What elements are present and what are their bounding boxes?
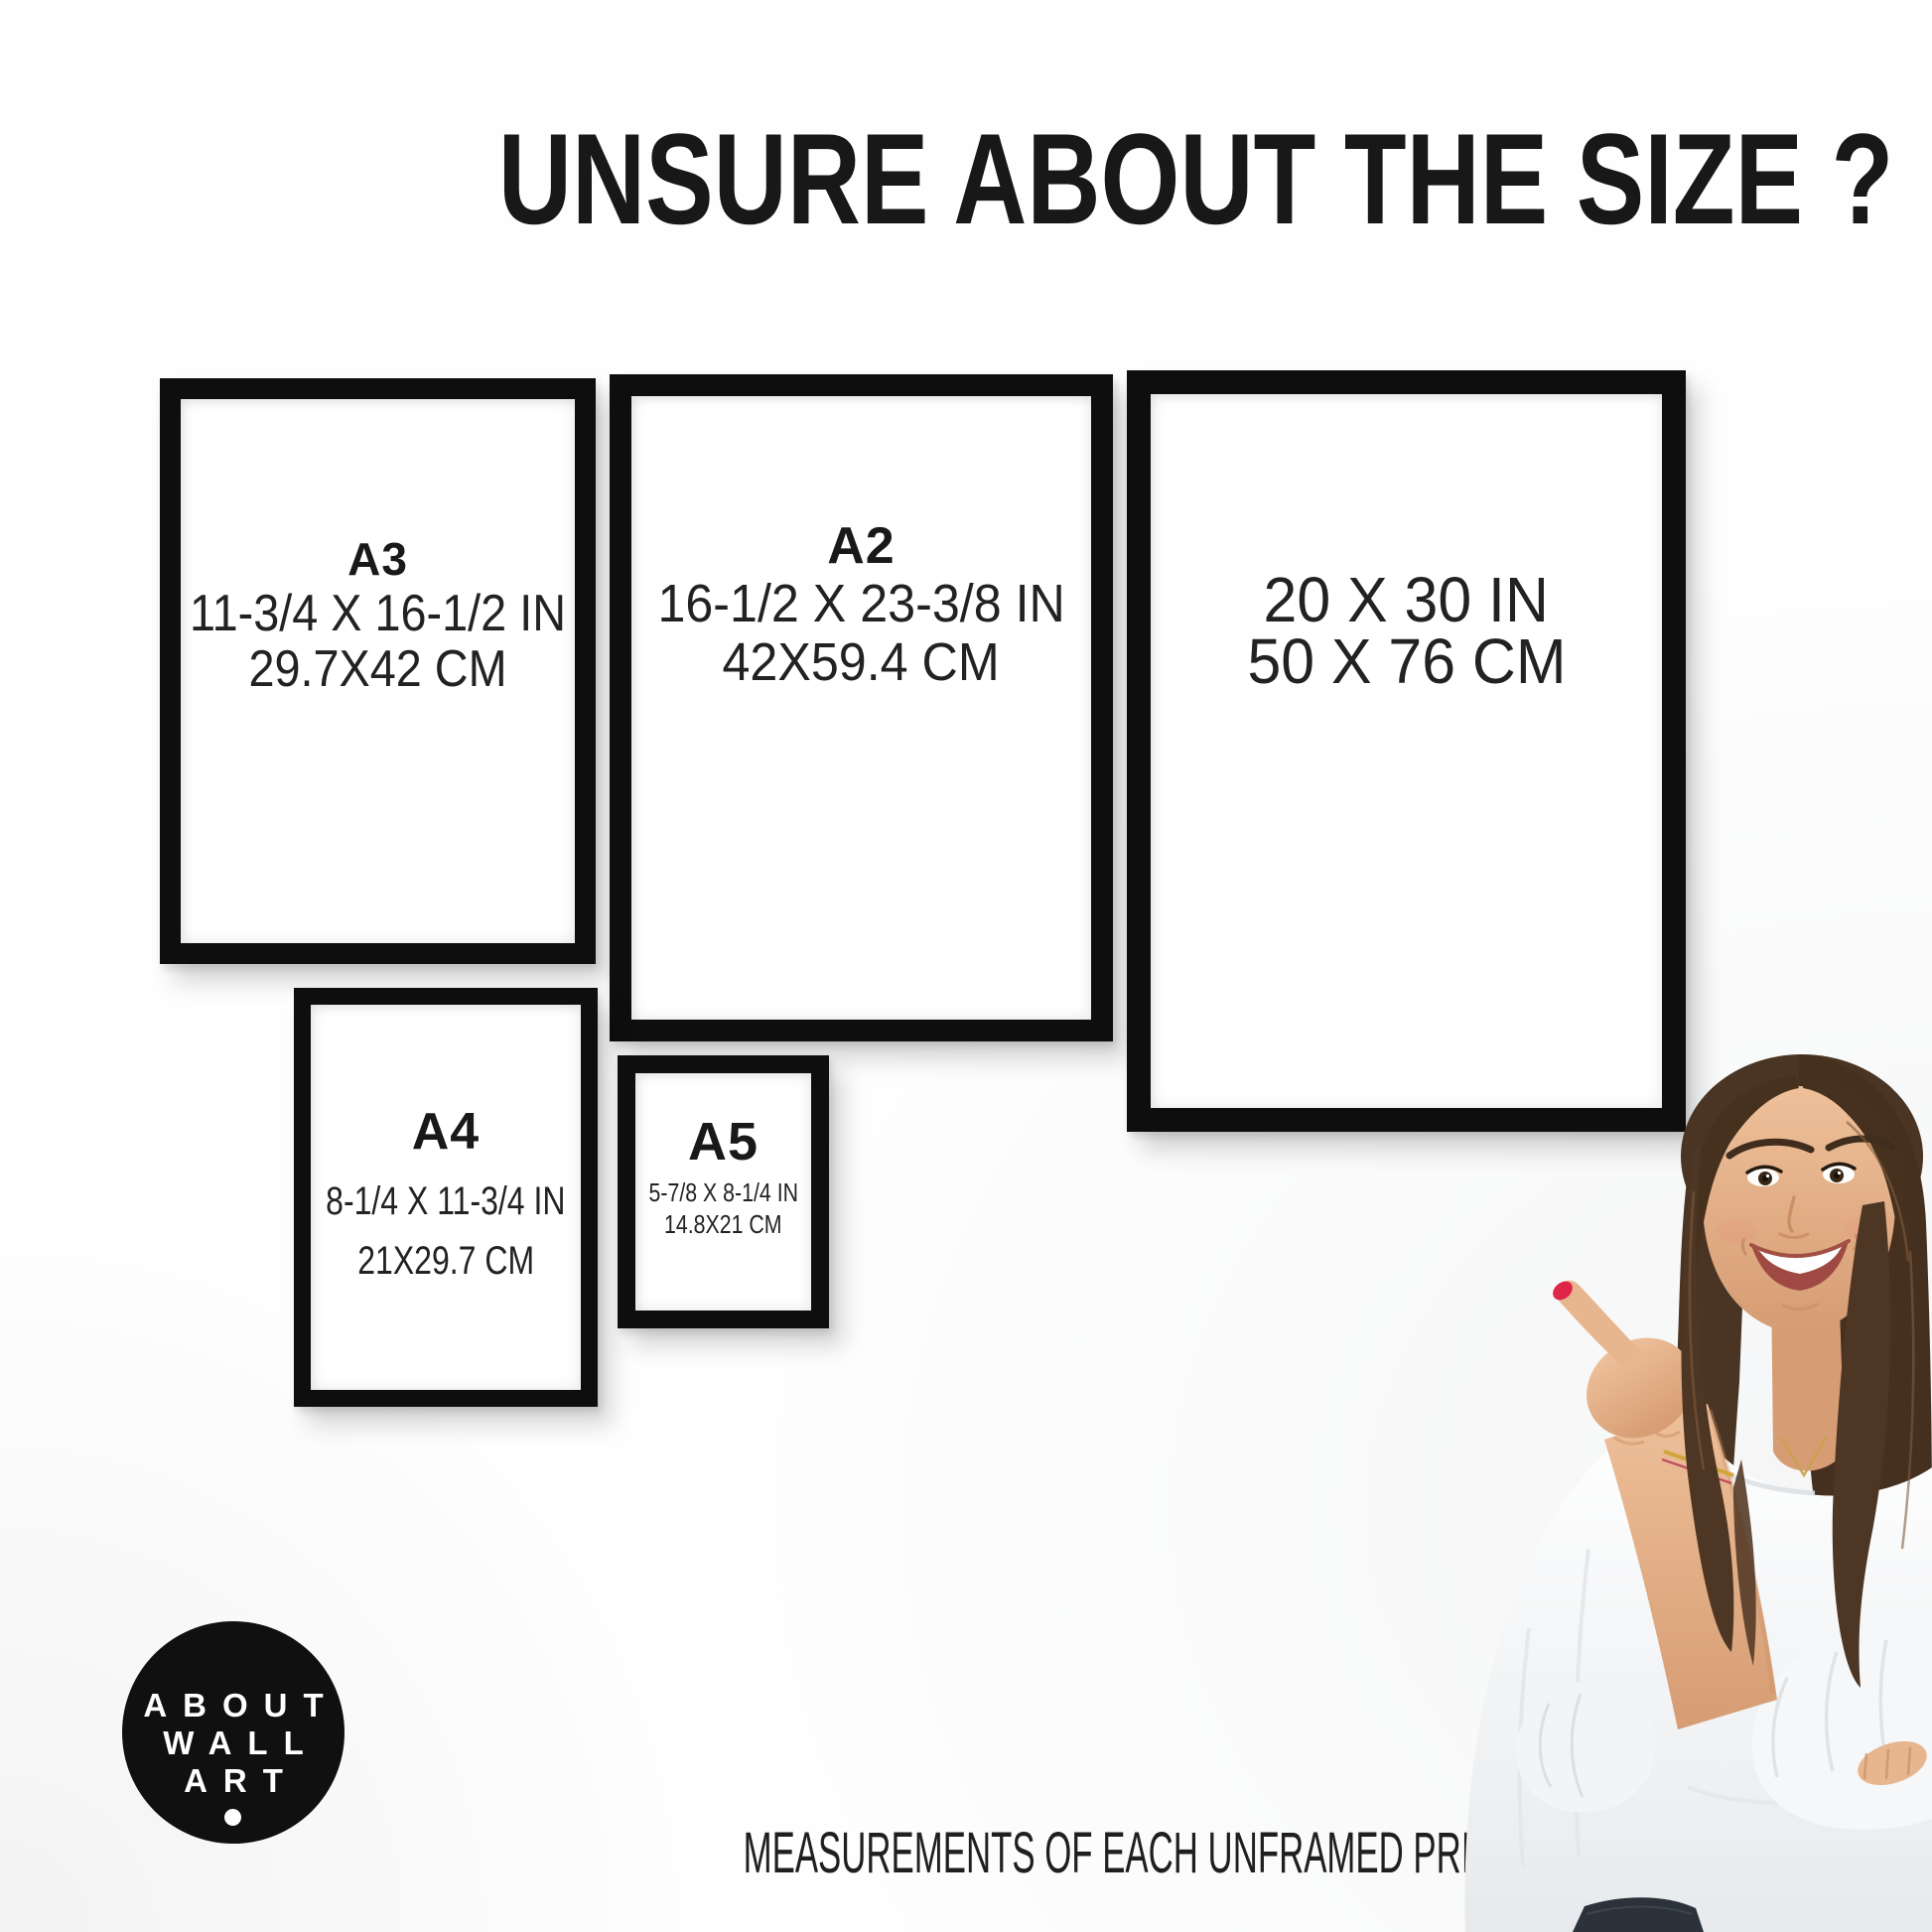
- footer-caption: MEASUREMENTS OF EACH UNFRAMED PRINT/POST…: [435, 1822, 1356, 1885]
- brand-logo-line3: ART: [184, 1762, 299, 1800]
- frame-a4-cm: 21X29.7 CM: [336, 1239, 556, 1283]
- frame-a5-inches: 5-7/8 X 8-1/4 IN: [632, 1176, 815, 1208]
- frame-20x30: 20 X 30 IN 50 X 76 CM: [1127, 370, 1686, 1132]
- frame-a5-paper: A5 5-7/8 X 8-1/4 IN 14.8X21 CM: [635, 1073, 811, 1311]
- frame-a4-paper: A4 8-1/4 X 11-3/4 IN 21X29.7 CM: [311, 1005, 581, 1390]
- frame-a4-label: A4: [412, 1104, 480, 1160]
- frame-a2: A2 16-1/2 X 23-3/8 IN 42X59.4 CM: [610, 374, 1113, 1041]
- brand-logo-dot: [224, 1809, 241, 1826]
- frame-a2-label: A2: [827, 517, 895, 575]
- frame-a4: A4 8-1/4 X 11-3/4 IN 21X29.7 CM: [294, 988, 598, 1407]
- frame-20x30-paper: 20 X 30 IN 50 X 76 CM: [1151, 394, 1662, 1108]
- frame-a5: A5 5-7/8 X 8-1/4 IN 14.8X21 CM: [618, 1055, 829, 1328]
- frame-a2-paper: A2 16-1/2 X 23-3/8 IN 42X59.4 CM: [631, 396, 1091, 1020]
- frame-a3-paper: A3 11-3/4 X 16-1/2 IN 29.7X42 CM: [181, 399, 575, 943]
- page-title: UNSURE ABOUT THE SIZE ?: [313, 111, 1711, 247]
- frame-a2-cm: 42X59.4 CM: [712, 633, 1010, 692]
- frame-20x30-inches: 20 X 30 IN: [1256, 569, 1556, 630]
- size-guide-infographic: UNSURE ABOUT THE SIZE ? A3 11-3/4 X 16-1…: [0, 0, 1932, 1932]
- woman-photo: [1390, 1033, 1932, 1932]
- brand-logo: ABOUT WALL ART: [122, 1621, 345, 1844]
- frame-a3-inches: 11-3/4 X 16-1/2 IN: [169, 586, 587, 641]
- frame-a5-label: A5: [688, 1113, 759, 1171]
- frame-20x30-cm: 50 X 76 CM: [1239, 630, 1575, 692]
- frame-a2-inches: 16-1/2 X 23-3/8 IN: [642, 575, 1080, 633]
- brand-logo-text: ABOUT WALL ART: [143, 1687, 323, 1826]
- frame-a3: A3 11-3/4 X 16-1/2 IN 29.7X42 CM: [160, 378, 596, 964]
- brand-logo-line1: ABOUT: [143, 1687, 339, 1725]
- frame-a4-inches: 8-1/4 X 11-3/4 IN: [296, 1179, 596, 1223]
- page-title-text: UNSURE ABOUT THE SIZE ?: [498, 111, 1894, 247]
- frame-a5-cm: 14.8X21 CM: [651, 1208, 795, 1240]
- brand-logo-line2: WALL: [163, 1725, 319, 1762]
- frame-a3-cm: 29.7X42 CM: [234, 641, 521, 697]
- frame-a3-label: A3: [347, 532, 408, 586]
